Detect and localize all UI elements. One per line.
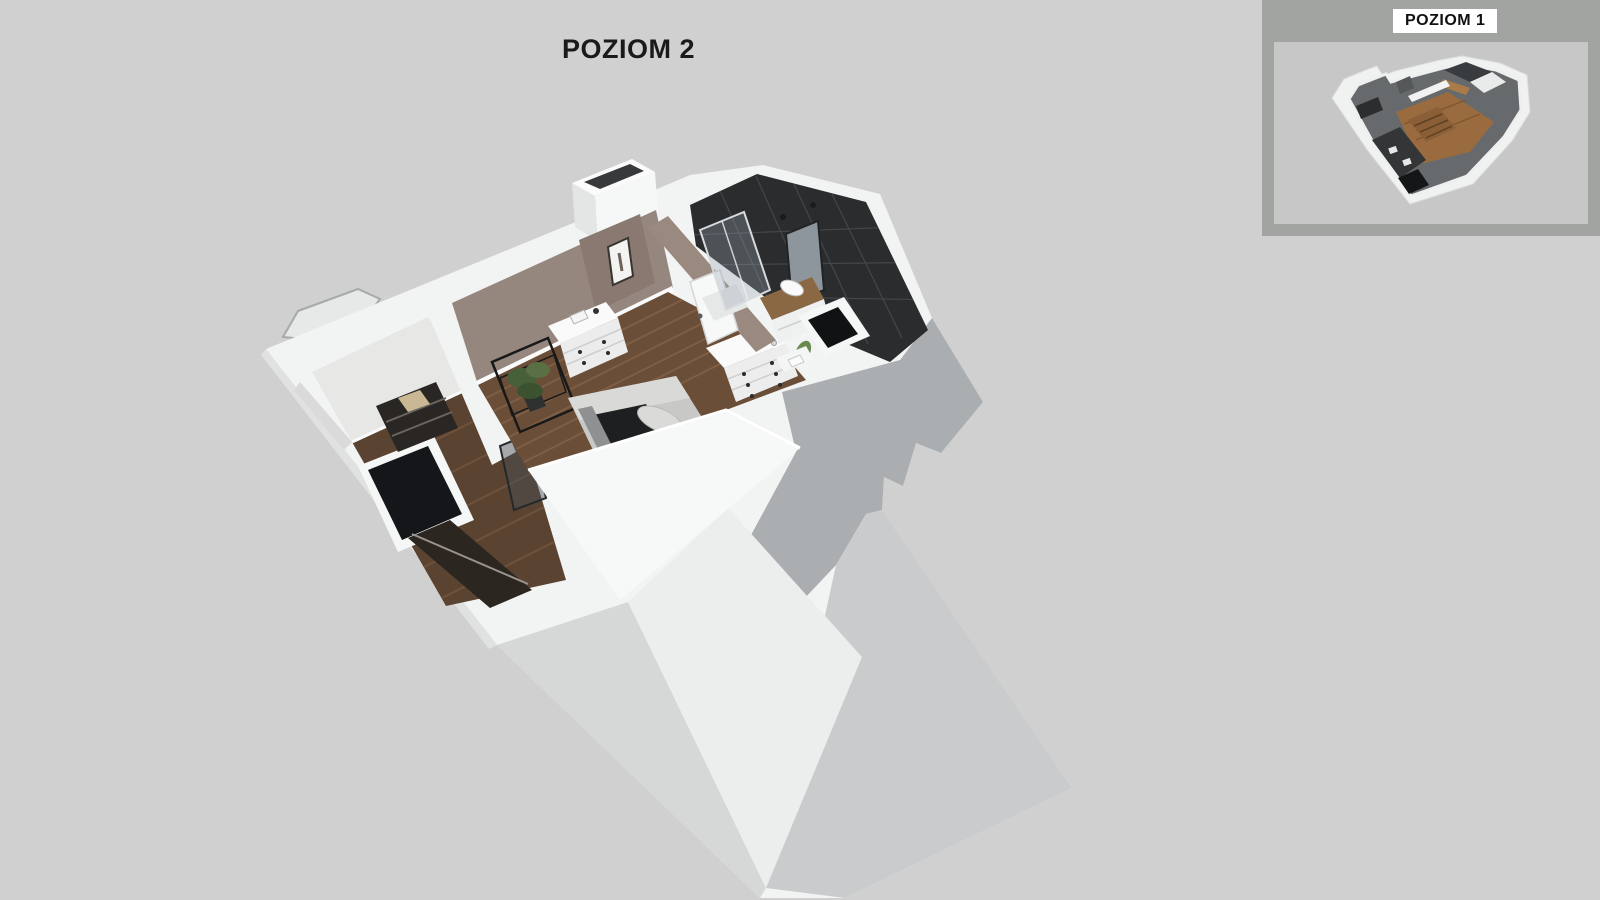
- level-1-thumbnail[interactable]: POZIOM 1: [1262, 0, 1600, 236]
- level-1-label-text: POZIOM 1: [1405, 12, 1485, 29]
- level-1-thumbnail-image[interactable]: [1274, 42, 1588, 224]
- level-1-label[interactable]: POZIOM 1: [1393, 9, 1497, 33]
- towel-hook: [780, 214, 786, 220]
- potted-plant: [526, 362, 550, 378]
- door-handle: [698, 314, 703, 319]
- floorplan-canvas: POZIOM 2: [0, 0, 1600, 900]
- level-1-floorplan: [1274, 42, 1588, 224]
- decor-bottle: [593, 308, 599, 314]
- potted-plant: [517, 383, 543, 399]
- towel-hook: [810, 202, 816, 208]
